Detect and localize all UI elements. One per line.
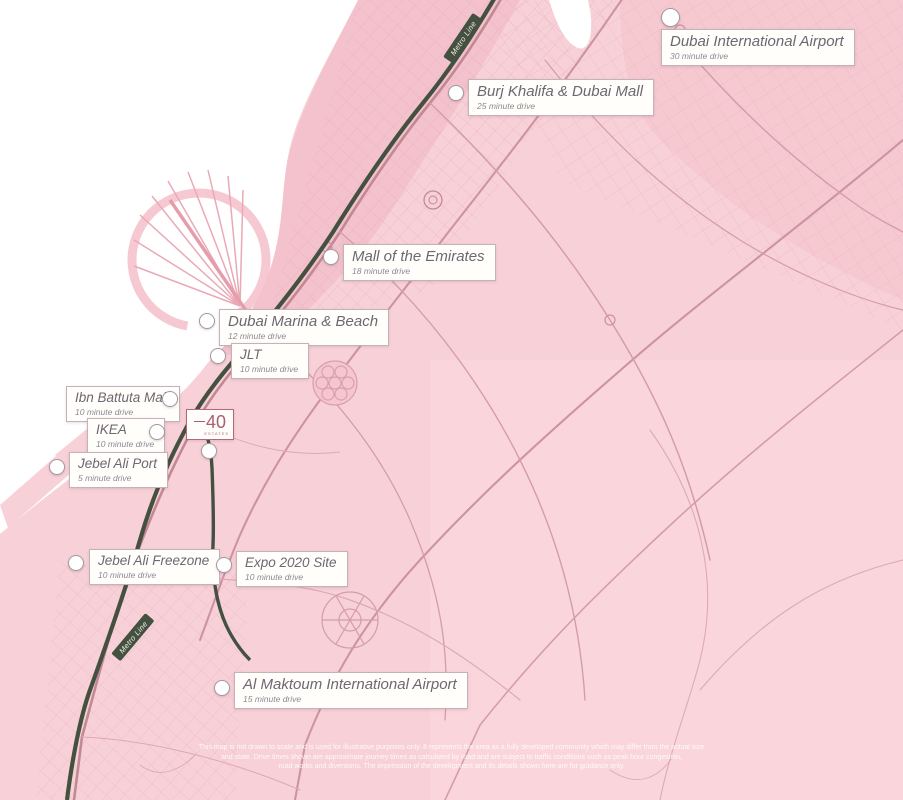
logo-subtext: ESTATES bbox=[204, 431, 229, 436]
location-name: IKEA bbox=[96, 422, 154, 438]
location-drive-time: 10 minute drive bbox=[240, 364, 298, 374]
development-logo: 40 ESTATES bbox=[186, 409, 234, 440]
label-jebel-ali-port: Jebel Ali Port 5 minute drive bbox=[69, 452, 168, 488]
location-name: Jebel Ali Port bbox=[78, 456, 157, 472]
label-burj-khalifa: Burj Khalifa & Dubai Mall 25 minute driv… bbox=[468, 79, 654, 116]
marker-dot-jebel-ali-freezone bbox=[68, 555, 84, 571]
logo-number-row: 40 bbox=[194, 414, 226, 430]
location-name: Mall of the Emirates bbox=[352, 248, 485, 265]
marker-dot-ikea bbox=[149, 424, 165, 440]
location-name: Al Maktoum International Airport bbox=[243, 676, 457, 693]
location-drive-time: 18 minute drive bbox=[352, 266, 485, 276]
marker-dot-burj-khalifa bbox=[448, 85, 464, 101]
disclaimer-line-1: This map is not drawn to scale and is us… bbox=[102, 743, 802, 753]
location-name: Burj Khalifa & Dubai Mall bbox=[477, 83, 643, 100]
marker-dot-jebel-ali-port bbox=[49, 459, 65, 475]
marker-dot-al-maktoum-airport bbox=[214, 680, 230, 696]
disclaimer-line-2: and state. Drive times shown are approxi… bbox=[102, 753, 802, 763]
location-drive-time: 10 minute drive bbox=[96, 439, 154, 449]
label-al-maktoum-airport: Al Maktoum International Airport 15 minu… bbox=[234, 672, 468, 709]
location-drive-time: 12 minute drive bbox=[228, 331, 378, 341]
label-dubai-international-airport: Dubai International Airport 30 minute dr… bbox=[661, 29, 855, 66]
location-drive-time: 15 minute drive bbox=[243, 694, 457, 704]
map-disclaimer: This map is not drawn to scale and is us… bbox=[102, 743, 802, 772]
marker-dot-dubai-international-airport bbox=[661, 8, 680, 27]
label-jebel-ali-freezone: Jebel Ali Freezone 10 minute drive bbox=[89, 549, 220, 585]
disclaimer-line-3: road works and diversions. The impressio… bbox=[102, 762, 802, 772]
marker-dot-mall-of-emirates bbox=[323, 249, 339, 265]
label-dubai-marina: Dubai Marina & Beach 12 minute drive bbox=[219, 309, 389, 346]
location-drive-time: 10 minute drive bbox=[245, 572, 337, 582]
location-name: Dubai International Airport bbox=[670, 33, 844, 50]
location-drive-time: 10 minute drive bbox=[98, 570, 209, 580]
location-name: JLT bbox=[240, 347, 298, 363]
location-drive-time: 30 minute drive bbox=[670, 51, 844, 61]
marker-dot-jlt bbox=[210, 348, 226, 364]
marker-dot-development-site bbox=[201, 443, 217, 459]
label-mall-of-emirates: Mall of the Emirates 18 minute drive bbox=[343, 244, 496, 281]
circle-community bbox=[313, 361, 357, 405]
label-expo-2020: Expo 2020 Site 10 minute drive bbox=[236, 551, 348, 587]
location-drive-time: 5 minute drive bbox=[78, 473, 157, 483]
label-jlt: JLT 10 minute drive bbox=[231, 343, 309, 379]
location-name: Ibn Battuta Mall bbox=[75, 390, 169, 406]
logo-number: 40 bbox=[206, 414, 226, 430]
location-name: Jebel Ali Freezone bbox=[98, 553, 209, 569]
marker-dot-expo-2020 bbox=[216, 557, 232, 573]
marker-dot-dubai-marina bbox=[199, 313, 215, 329]
location-drive-time: 25 minute drive bbox=[477, 101, 643, 111]
dubai-location-map: Metro Line Metro Line Dubai Internationa… bbox=[0, 0, 903, 800]
location-name: Expo 2020 Site bbox=[245, 555, 337, 571]
logo-dash bbox=[194, 421, 205, 423]
marker-dot-ibn-battuta-mall bbox=[162, 391, 178, 407]
location-name: Dubai Marina & Beach bbox=[228, 313, 378, 330]
location-drive-time: 10 minute drive bbox=[75, 407, 169, 417]
